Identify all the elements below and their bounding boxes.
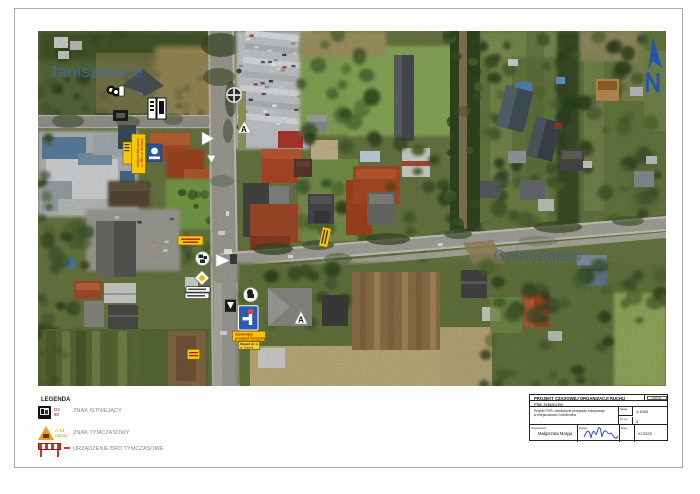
- svg-text:przejazd kolejowy: przejazd kolejowy: [235, 337, 266, 341]
- svg-text:kolejowy w ciągu ul.: kolejowy w ciągu ul.: [140, 138, 144, 168]
- svg-text:Zamknięty przejazd: Zamknięty przejazd: [136, 138, 140, 168]
- svg-text:A: A: [298, 316, 304, 325]
- svg-text:ul. Gdzieś: ul. Gdzieś: [240, 346, 254, 350]
- svg-text:A: A: [241, 125, 247, 134]
